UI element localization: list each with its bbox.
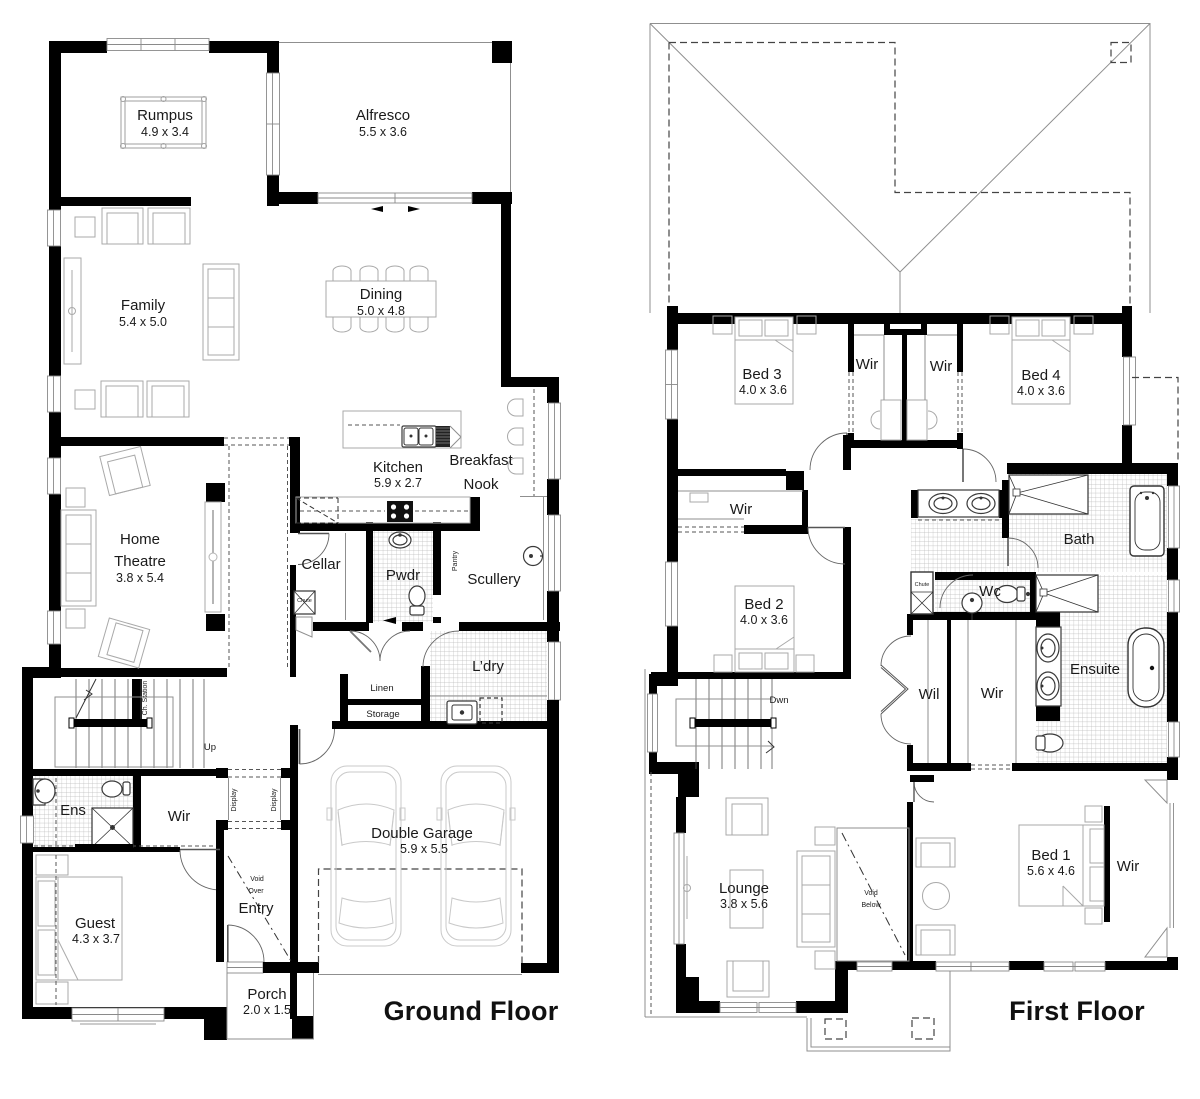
svg-text:Wir: Wir: [168, 808, 191, 825]
svg-text:5.9 x 2.7: 5.9 x 2.7: [374, 476, 422, 490]
svg-text:Wir: Wir: [1117, 858, 1140, 875]
svg-text:Display: Display: [231, 788, 238, 811]
svg-text:Ensuite: Ensuite: [1070, 661, 1120, 678]
svg-text:Theatre: Theatre: [114, 553, 166, 570]
svg-text:Rumpus: Rumpus: [137, 107, 193, 124]
svg-text:3.8 x 5.4: 3.8 x 5.4: [116, 571, 164, 585]
svg-text:Ch. Station: Ch. Station: [142, 681, 149, 716]
svg-text:Bath: Bath: [1064, 531, 1095, 548]
svg-text:Dining: Dining: [360, 286, 403, 303]
svg-text:Chute: Chute: [297, 598, 312, 604]
svg-text:Linen: Linen: [370, 683, 393, 694]
svg-text:5.4 x 5.0: 5.4 x 5.0: [119, 315, 167, 329]
svg-text:Home: Home: [120, 531, 160, 548]
svg-text:Wc: Wc: [979, 583, 1001, 600]
svg-text:Wir: Wir: [730, 501, 753, 518]
svg-text:Alfresco: Alfresco: [356, 107, 410, 124]
svg-text:Lounge: Lounge: [719, 880, 769, 897]
svg-text:Ens: Ens: [60, 802, 86, 819]
svg-text:Double Garage: Double Garage: [371, 825, 473, 842]
svg-text:Nook: Nook: [463, 476, 499, 493]
svg-text:Bed 2: Bed 2: [744, 596, 783, 613]
svg-text:Bed 1: Bed 1: [1031, 847, 1070, 864]
svg-text:Guest: Guest: [75, 915, 116, 932]
svg-text:5.0 x 4.8: 5.0 x 4.8: [357, 304, 405, 318]
svg-text:5.6 x 4.6: 5.6 x 4.6: [1027, 864, 1075, 878]
svg-text:Bed 4: Bed 4: [1021, 367, 1060, 384]
svg-text:Scullery: Scullery: [467, 571, 521, 588]
svg-text:Dwn: Dwn: [769, 695, 788, 706]
svg-text:Wir: Wir: [856, 356, 879, 373]
svg-text:4.0 x 3.6: 4.0 x 3.6: [1017, 384, 1065, 398]
svg-text:Bed 3: Bed 3: [742, 366, 781, 383]
svg-text:Breakfast: Breakfast: [449, 452, 513, 469]
svg-text:Pwdr: Pwdr: [386, 567, 420, 584]
svg-text:Storage: Storage: [366, 709, 399, 720]
svg-text:First Floor: First Floor: [1009, 996, 1145, 1026]
svg-text:Below: Below: [861, 902, 881, 909]
svg-text:Wir: Wir: [930, 358, 953, 375]
svg-text:Cellar: Cellar: [301, 556, 340, 573]
svg-text:Display: Display: [271, 788, 278, 811]
svg-text:5.5 x 3.6: 5.5 x 3.6: [359, 125, 407, 139]
svg-text:Ground Floor: Ground Floor: [384, 996, 559, 1026]
svg-text:L’dry: L’dry: [472, 658, 504, 675]
svg-text:Chute: Chute: [915, 582, 930, 588]
svg-text:Family: Family: [121, 297, 166, 314]
svg-text:Porch: Porch: [247, 986, 286, 1003]
svg-text:Wir: Wir: [981, 685, 1004, 702]
svg-text:3.8 x 5.6: 3.8 x 5.6: [720, 897, 768, 911]
svg-text:Over: Over: [248, 888, 264, 895]
svg-text:4.0 x 3.6: 4.0 x 3.6: [740, 613, 788, 627]
svg-text:4.0 x 3.6: 4.0 x 3.6: [739, 383, 787, 397]
svg-text:Kitchen: Kitchen: [373, 459, 423, 476]
svg-text:Entry: Entry: [238, 900, 274, 917]
svg-text:Void: Void: [250, 876, 264, 883]
svg-text:5.9 x 5.5: 5.9 x 5.5: [400, 842, 448, 856]
svg-text:2.0 x 1.5: 2.0 x 1.5: [243, 1003, 291, 1017]
svg-text:Up: Up: [204, 742, 216, 753]
svg-text:Pantry: Pantry: [452, 550, 459, 571]
svg-text:4.3 x 3.7: 4.3 x 3.7: [72, 932, 120, 946]
svg-text:4.9 x 3.4: 4.9 x 3.4: [141, 125, 189, 139]
svg-text:Void: Void: [864, 890, 878, 897]
svg-text:Wil: Wil: [919, 686, 940, 703]
